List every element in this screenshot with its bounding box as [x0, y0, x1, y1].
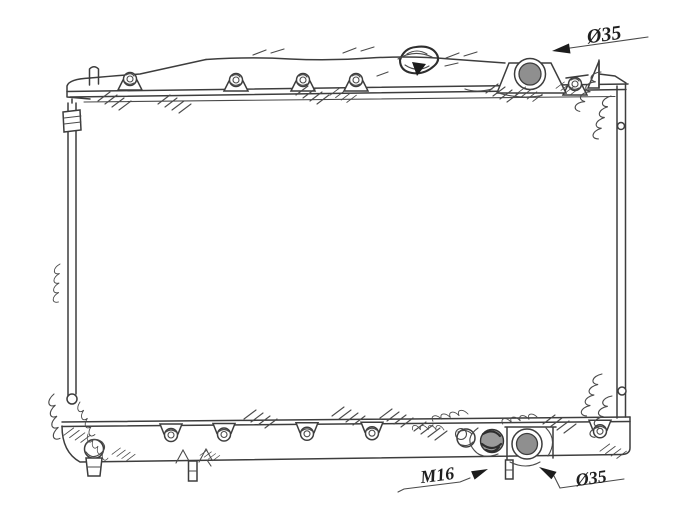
outlet-annotation: Ø35	[539, 466, 624, 490]
leader-arrowhead	[552, 44, 571, 54]
leader-arrowhead	[539, 467, 557, 479]
screw	[160, 424, 182, 442]
inlet-pipe-opening	[519, 63, 541, 85]
bolt-pair	[456, 429, 476, 448]
right-side-bracket	[617, 84, 626, 418]
screw	[296, 423, 318, 441]
top-tank-ridge	[206, 57, 505, 63]
screw	[344, 74, 368, 92]
bracket-hole	[618, 123, 625, 130]
bottom-tank-right-end	[622, 417, 630, 455]
thread-annotation: M16	[398, 463, 488, 492]
screw	[224, 74, 248, 92]
bracket-hole	[618, 387, 626, 395]
screw	[213, 424, 235, 442]
top-tank-top-edge	[90, 60, 206, 79]
overflow-nipple	[90, 67, 99, 85]
thread-size-label: M16	[418, 463, 455, 487]
thread-fitting-m16	[481, 430, 504, 453]
screw	[291, 74, 315, 92]
screw	[361, 422, 383, 440]
inlet-diameter-label: Ø35	[585, 22, 623, 49]
drain-plug	[85, 439, 105, 476]
mounting-pin-left	[176, 449, 212, 481]
tube-fitting	[63, 110, 81, 132]
radiator-technical-drawing: Ø35	[0, 0, 696, 515]
top-tank-left-cap	[67, 78, 90, 99]
left-overflow-tube	[63, 99, 81, 404]
outlet-pipe-opening	[517, 434, 538, 455]
filler-cap	[377, 47, 458, 76]
inlet-annotation: Ø35	[552, 22, 648, 54]
inlet-port	[465, 59, 566, 98]
tube-end	[67, 394, 77, 404]
radiator-diagram: Ø35	[0, 0, 696, 515]
outlet-diameter-label: Ø35	[573, 466, 607, 490]
leader-arrowhead	[471, 469, 488, 480]
hatch-marks	[41, 47, 626, 466]
